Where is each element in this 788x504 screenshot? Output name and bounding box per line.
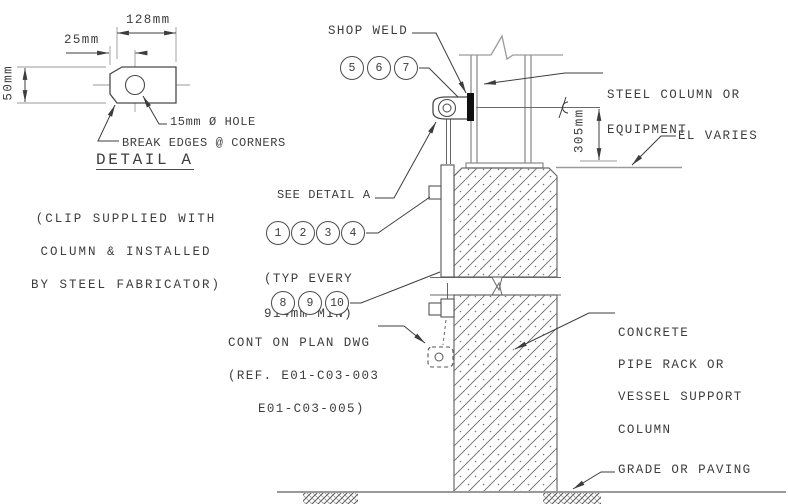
steel-column-leader (484, 73, 603, 84)
clip-note-line2: COLUMN & INSTALLED (10, 247, 242, 258)
concrete-label-line2: PIPE RACK OR (618, 360, 743, 371)
drawing-canvas: 128mm 25mm 50mm 15mm Ø HOLE BREAK EDGES … (0, 0, 788, 504)
cont-note-line3: E01-C03-005) (228, 404, 379, 415)
break-edges-label: BREAK EDGES @ CORNERS (122, 138, 286, 150)
detail-a-view (17, 27, 190, 141)
callout-2: 2 (291, 221, 315, 245)
clip-note-line3: BY STEEL FABRICATOR) (10, 280, 242, 291)
concrete-label-line3: VESSEL SUPPORT (618, 392, 743, 403)
concrete-label-line1: CONCRETE (618, 328, 743, 339)
weld-callout-leader (419, 68, 458, 97)
cont-note-line1: CONT ON PLAN DWG (228, 338, 379, 349)
cont-note-line2: (REF. E01-C03-003 (228, 371, 379, 382)
callout-5: 5 (340, 56, 364, 80)
typ-note-line1: (TYP EVERY (264, 274, 353, 286)
callout-6: 6 (367, 56, 391, 80)
lower-callout-leader (350, 272, 440, 303)
welded-clip (433, 93, 474, 121)
base-plate (466, 163, 543, 168)
hole-label: 15mm Ø HOLE (170, 117, 256, 129)
steel-column-label: STEEL COLUMN OR EQUIPMENT (607, 67, 741, 159)
callout-9: 9 (298, 291, 322, 315)
clip-note: (CLIP SUPPLIED WITH COLUMN & INSTALLED B… (10, 192, 242, 313)
concrete-label-line4: COLUMN (618, 425, 743, 436)
dim-128-label: 128mm (126, 15, 171, 27)
cont-note: CONT ON PLAN DWG (REF. E01-C03-003 E01-C… (228, 316, 379, 437)
grade-label: GRADE OR PAVING (618, 465, 752, 477)
see-detail-leader (375, 122, 436, 198)
break-edges-leader (98, 105, 119, 141)
embed-plate-assembly (429, 119, 454, 317)
see-detail-label: SEE DETAIL A (277, 190, 371, 202)
shop-weld-leader (412, 33, 466, 93)
steel-column (471, 55, 531, 163)
column-break-symbol (459, 36, 563, 59)
callout-10: 10 (325, 291, 349, 315)
callout-7: 7 (394, 56, 418, 80)
steel-column-label-line1: STEEL COLUMN OR (607, 90, 741, 102)
clip-plate-outline (110, 67, 176, 103)
el-varies-label: EL VARIES (678, 131, 758, 143)
clip-note-line1: (CLIP SUPPLIED WITH (10, 214, 242, 225)
grade-leader (573, 472, 615, 489)
clip-callout-leader (366, 197, 430, 233)
cont-leader (378, 326, 425, 343)
concrete-label: CONCRETE PIPE RACK OR VESSEL SUPPORT COL… (618, 306, 743, 457)
shop-weld-fillet (467, 93, 474, 121)
dim-50-label: 50mm (3, 53, 15, 113)
callout-4: 4 (341, 221, 365, 245)
detail-title: DETAIL A (96, 155, 194, 170)
paving-hatch-right (543, 493, 601, 504)
callout-8: 8 (271, 291, 295, 315)
paving-hatch-left (303, 493, 358, 504)
callout-1: 1 (266, 221, 290, 245)
shop-weld-label: SHOP WELD (328, 26, 408, 38)
dim-25-label: 25mm (64, 35, 100, 47)
concrete-column-lower (454, 295, 557, 492)
concrete-break-lower (430, 283, 561, 295)
dim-305-label: 305mm (574, 101, 586, 161)
callout-3: 3 (316, 221, 340, 245)
concrete-column-upper (454, 168, 557, 277)
hidden-clip (428, 320, 453, 367)
